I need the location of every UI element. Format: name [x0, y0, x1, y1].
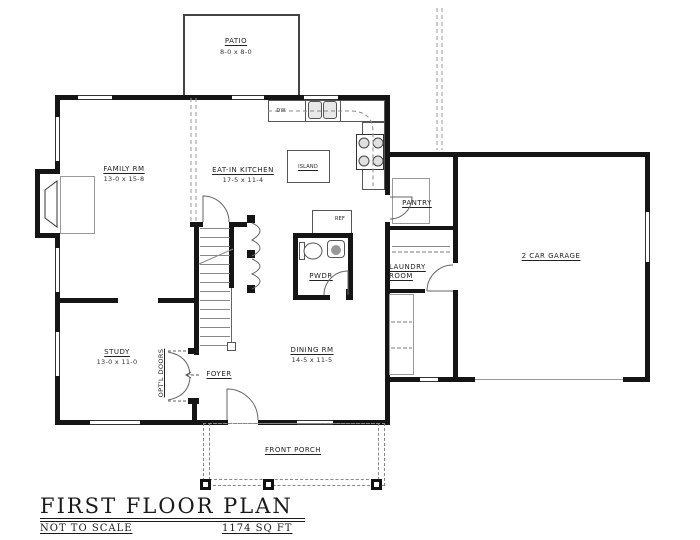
title-rule — [40, 521, 305, 522]
roof-line-dashes — [437, 8, 442, 150]
floor-plan-canvas: PATIO 8-0 x 8-0 2 CAR GARAGE PANTRY LAU — [0, 0, 700, 540]
scale-note: NOT TO SCALE — [40, 523, 133, 534]
title-rule — [40, 518, 305, 519]
powder-sink-bowl — [331, 245, 341, 255]
pantry-door-arc — [390, 197, 412, 219]
stair-door-arc — [203, 196, 229, 222]
linework-layer — [0, 0, 700, 540]
closet-shelf-dashes — [391, 322, 412, 348]
firebox — [45, 181, 57, 227]
stair-winder-line — [199, 249, 233, 264]
stove-burners — [359, 138, 383, 166]
upper-cabinet-dashes — [268, 111, 373, 186]
bifold-doors — [252, 223, 260, 289]
powder-door-arc — [324, 271, 348, 295]
optl-door-headers — [168, 351, 188, 401]
plan-title: FIRST FLOOR PLAN — [40, 494, 293, 518]
front-door-arc — [227, 389, 258, 420]
ceiling-break-dashes — [191, 98, 196, 221]
toilet-bowl — [304, 243, 322, 259]
area-note: 1174 SQ FT — [222, 523, 292, 534]
laundry-door-arc — [427, 265, 453, 291]
